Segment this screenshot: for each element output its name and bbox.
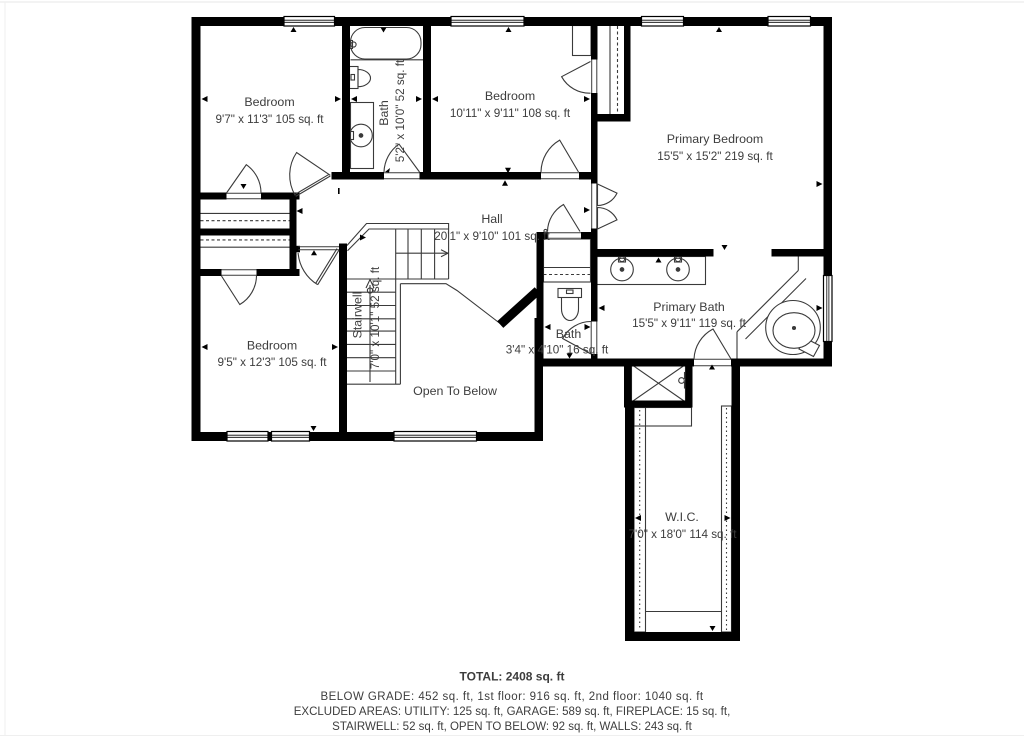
- svg-text:Bath: Bath: [377, 100, 391, 126]
- svg-text:7'0" x 18'0" 114 sq. ft: 7'0" x 18'0" 114 sq. ft: [628, 528, 737, 541]
- svg-text:Open To Below: Open To Below: [413, 384, 497, 398]
- svg-text:9'5" x 12'3" 105 sq. ft: 9'5" x 12'3" 105 sq. ft: [218, 356, 328, 369]
- svg-text:15'5" x 15'2" 219 sq. ft: 15'5" x 15'2" 219 sq. ft: [657, 150, 773, 163]
- svg-text:5'2" x 10'0" 52 sq. ft: 5'2" x 10'0" 52 sq. ft: [394, 59, 407, 162]
- svg-text:Bath: Bath: [556, 327, 582, 341]
- svg-text:Primary Bath: Primary Bath: [653, 300, 725, 314]
- svg-text:Bedroom: Bedroom: [247, 339, 297, 353]
- svg-text:TOTAL: 2408 sq. ft: TOTAL: 2408 sq. ft: [460, 670, 565, 684]
- svg-text:9'7" x 11'3" 105 sq. ft: 9'7" x 11'3" 105 sq. ft: [215, 113, 324, 126]
- svg-text:Hall: Hall: [481, 212, 502, 226]
- svg-text:BELOW GRADE: 452 sq. ft, 1st f: BELOW GRADE: 452 sq. ft, 1st floor: 916 …: [320, 691, 703, 703]
- svg-text:Bedroom: Bedroom: [485, 89, 535, 103]
- svg-text:Bedroom: Bedroom: [244, 95, 294, 109]
- svg-text:Primary Bedroom: Primary Bedroom: [667, 132, 763, 146]
- svg-text:20'1" x 9'10" 101 sq. ft: 20'1" x 9'10" 101 sq. ft: [434, 230, 550, 243]
- svg-text:STAIRWELL: 52 sq. ft, OPEN TO: STAIRWELL: 52 sq. ft, OPEN TO BELOW: 92 …: [332, 721, 692, 733]
- svg-text:7'0" x 10'1" 52 sq. ft: 7'0" x 10'1" 52 sq. ft: [369, 266, 382, 369]
- svg-text:Stairwell: Stairwell: [351, 292, 365, 339]
- svg-text:EXCLUDED AREAS: UTILITY: 125 s: EXCLUDED AREAS: UTILITY: 125 sq. ft, GAR…: [294, 706, 731, 718]
- svg-text:10'11" x 9'11" 108 sq. ft: 10'11" x 9'11" 108 sq. ft: [450, 107, 571, 120]
- svg-text:3'4" x 4'10" 16 sq. ft: 3'4" x 4'10" 16 sq. ft: [506, 344, 609, 357]
- svg-text:W.I.C.: W.I.C.: [665, 510, 699, 524]
- svg-text:15'5" x 9'11" 119 sq. ft: 15'5" x 9'11" 119 sq. ft: [632, 317, 746, 330]
